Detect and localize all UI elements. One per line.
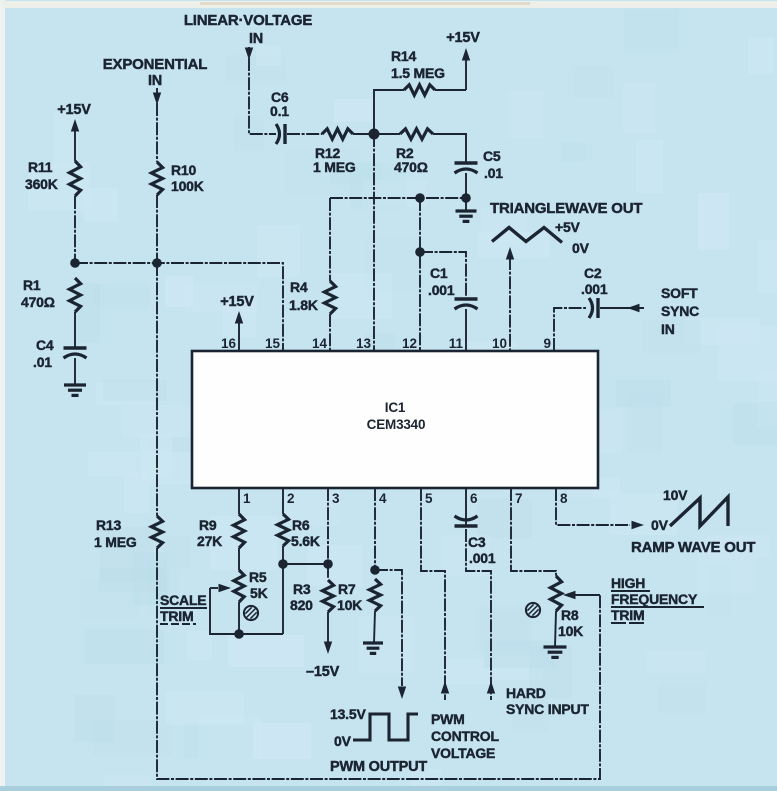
- svg-text:1.5 MEG: 1.5 MEG: [391, 65, 445, 81]
- svg-text:13: 13: [356, 336, 372, 351]
- svg-text:R13: R13: [96, 517, 121, 533]
- svg-text:R14: R14: [391, 48, 416, 64]
- svg-text:10K: 10K: [558, 623, 583, 639]
- svg-text:1: 1: [243, 491, 251, 506]
- svg-text:EXPONENTIAL: EXPONENTIAL: [103, 56, 208, 73]
- svg-text:5K: 5K: [250, 585, 268, 601]
- svg-text:R5: R5: [249, 569, 267, 585]
- svg-text:SYNC: SYNC: [661, 303, 699, 319]
- svg-text:10V: 10V: [663, 487, 688, 503]
- svg-text:PWM OUTPUT: PWM OUTPUT: [330, 759, 427, 775]
- svg-text:TRIANGLEWAVE OUT: TRIANGLEWAVE OUT: [490, 200, 642, 217]
- svg-text:FREQUENCY: FREQUENCY: [611, 591, 698, 607]
- svg-text:5: 5: [425, 491, 433, 506]
- svg-text:CEM3340: CEM3340: [367, 417, 426, 432]
- svg-text:IN: IN: [148, 73, 162, 89]
- svg-text:27K: 27K: [197, 533, 222, 549]
- svg-text:13.5V: 13.5V: [330, 706, 366, 722]
- svg-text:R3: R3: [293, 581, 311, 597]
- svg-text:820: 820: [290, 597, 313, 613]
- svg-text:.001: .001: [469, 550, 496, 566]
- svg-text:6: 6: [470, 491, 478, 506]
- svg-text:.001: .001: [428, 282, 455, 298]
- svg-text:R11: R11: [28, 159, 53, 175]
- svg-text:SCALE: SCALE: [160, 592, 206, 608]
- svg-text:C4: C4: [36, 337, 54, 353]
- svg-text:11: 11: [449, 336, 464, 351]
- svg-text:R7: R7: [338, 581, 356, 597]
- svg-text:RAMP WAVE OUT: RAMP WAVE OUT: [631, 539, 755, 556]
- svg-text:0.1: 0.1: [270, 103, 289, 119]
- svg-text:.001: .001: [581, 281, 608, 297]
- svg-text:VOLTAGE: VOLTAGE: [431, 745, 495, 761]
- svg-text:.01: .01: [33, 354, 52, 370]
- svg-text:IN: IN: [661, 321, 675, 337]
- svg-text:10: 10: [492, 336, 507, 351]
- svg-text:TRIM: TRIM: [611, 607, 644, 623]
- svg-text:PWM: PWM: [431, 711, 465, 727]
- svg-text:IN: IN: [249, 31, 263, 47]
- svg-text:9: 9: [543, 336, 551, 351]
- svg-text:+5V: +5V: [555, 219, 581, 235]
- svg-text:R6: R6: [292, 517, 310, 533]
- svg-text:IC1: IC1: [385, 400, 406, 415]
- svg-text:7: 7: [515, 491, 523, 506]
- svg-text:LINEAR·VOLTAGE: LINEAR·VOLTAGE: [184, 12, 312, 29]
- svg-text:HIGH: HIGH: [611, 575, 645, 591]
- svg-text:1 MEG: 1 MEG: [313, 159, 356, 175]
- svg-text:R10: R10: [171, 162, 196, 178]
- svg-text:C1: C1: [430, 265, 448, 281]
- svg-text:SOFT: SOFT: [661, 285, 698, 301]
- svg-text:SYNC INPUT: SYNC INPUT: [506, 701, 589, 717]
- svg-text:0V: 0V: [572, 240, 590, 256]
- svg-text:1.8K: 1.8K: [289, 297, 318, 313]
- svg-text:R4: R4: [290, 279, 308, 295]
- svg-text:100K: 100K: [171, 178, 204, 194]
- svg-text:15: 15: [265, 336, 281, 351]
- svg-text:470Ω: 470Ω: [21, 294, 55, 310]
- svg-text:8: 8: [560, 491, 568, 506]
- svg-text:16: 16: [221, 336, 237, 351]
- svg-text:C3: C3: [468, 534, 486, 550]
- svg-text:–15V: –15V: [306, 664, 340, 680]
- svg-text:2: 2: [287, 491, 295, 506]
- svg-text:470Ω: 470Ω: [394, 159, 428, 175]
- svg-text:.01: .01: [484, 165, 503, 181]
- svg-text:360K: 360K: [25, 176, 58, 192]
- svg-text:14: 14: [312, 336, 328, 351]
- svg-text:HARD: HARD: [506, 685, 546, 701]
- svg-text:R9: R9: [199, 517, 217, 533]
- svg-text:C2: C2: [584, 265, 602, 281]
- svg-text:1 MEG: 1 MEG: [94, 534, 137, 550]
- svg-text:+15V: +15V: [57, 102, 91, 118]
- svg-text:R8: R8: [561, 607, 579, 623]
- svg-text:TRIM: TRIM: [160, 608, 193, 624]
- svg-text:4: 4: [379, 491, 387, 506]
- svg-text:10K: 10K: [337, 597, 362, 613]
- svg-text:5.6K: 5.6K: [291, 533, 320, 549]
- svg-text:CONTROL: CONTROL: [431, 728, 499, 744]
- svg-text:12: 12: [402, 336, 417, 351]
- svg-text:C5: C5: [483, 148, 501, 164]
- svg-text:0V: 0V: [651, 517, 669, 533]
- svg-text:+15V: +15V: [446, 30, 480, 46]
- svg-text:3: 3: [332, 491, 340, 506]
- svg-text:+15V: +15V: [220, 294, 254, 310]
- svg-text:R1: R1: [23, 277, 41, 293]
- svg-text:0V: 0V: [334, 733, 352, 749]
